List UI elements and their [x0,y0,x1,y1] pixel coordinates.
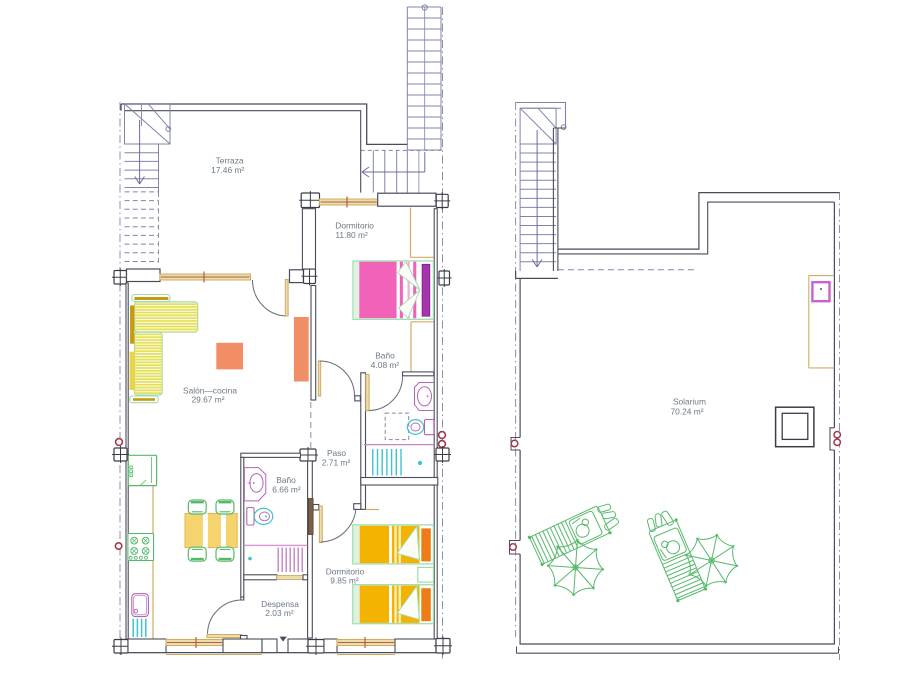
svg-text:9.85 m²: 9.85 m² [330,576,359,586]
svg-text:6.66 m²: 6.66 m² [272,484,301,494]
svg-text:4.08 m²: 4.08 m² [371,360,400,370]
svg-text:Dormitorio: Dormitorio [335,221,374,231]
svg-text:Baño: Baño [375,351,395,361]
svg-text:70.24 m²: 70.24 m² [670,407,703,417]
svg-text:Terraza: Terraza [216,156,244,166]
svg-text:11.80 m²: 11.80 m² [335,230,368,240]
svg-text:2.71 m²: 2.71 m² [322,457,351,467]
svg-text:2.03 m²: 2.03 m² [265,608,294,618]
svg-text:17.46 m²: 17.46 m² [211,165,244,175]
svg-text:29.67 m²: 29.67 m² [191,395,224,405]
svg-text:Solarium: Solarium [673,397,706,407]
